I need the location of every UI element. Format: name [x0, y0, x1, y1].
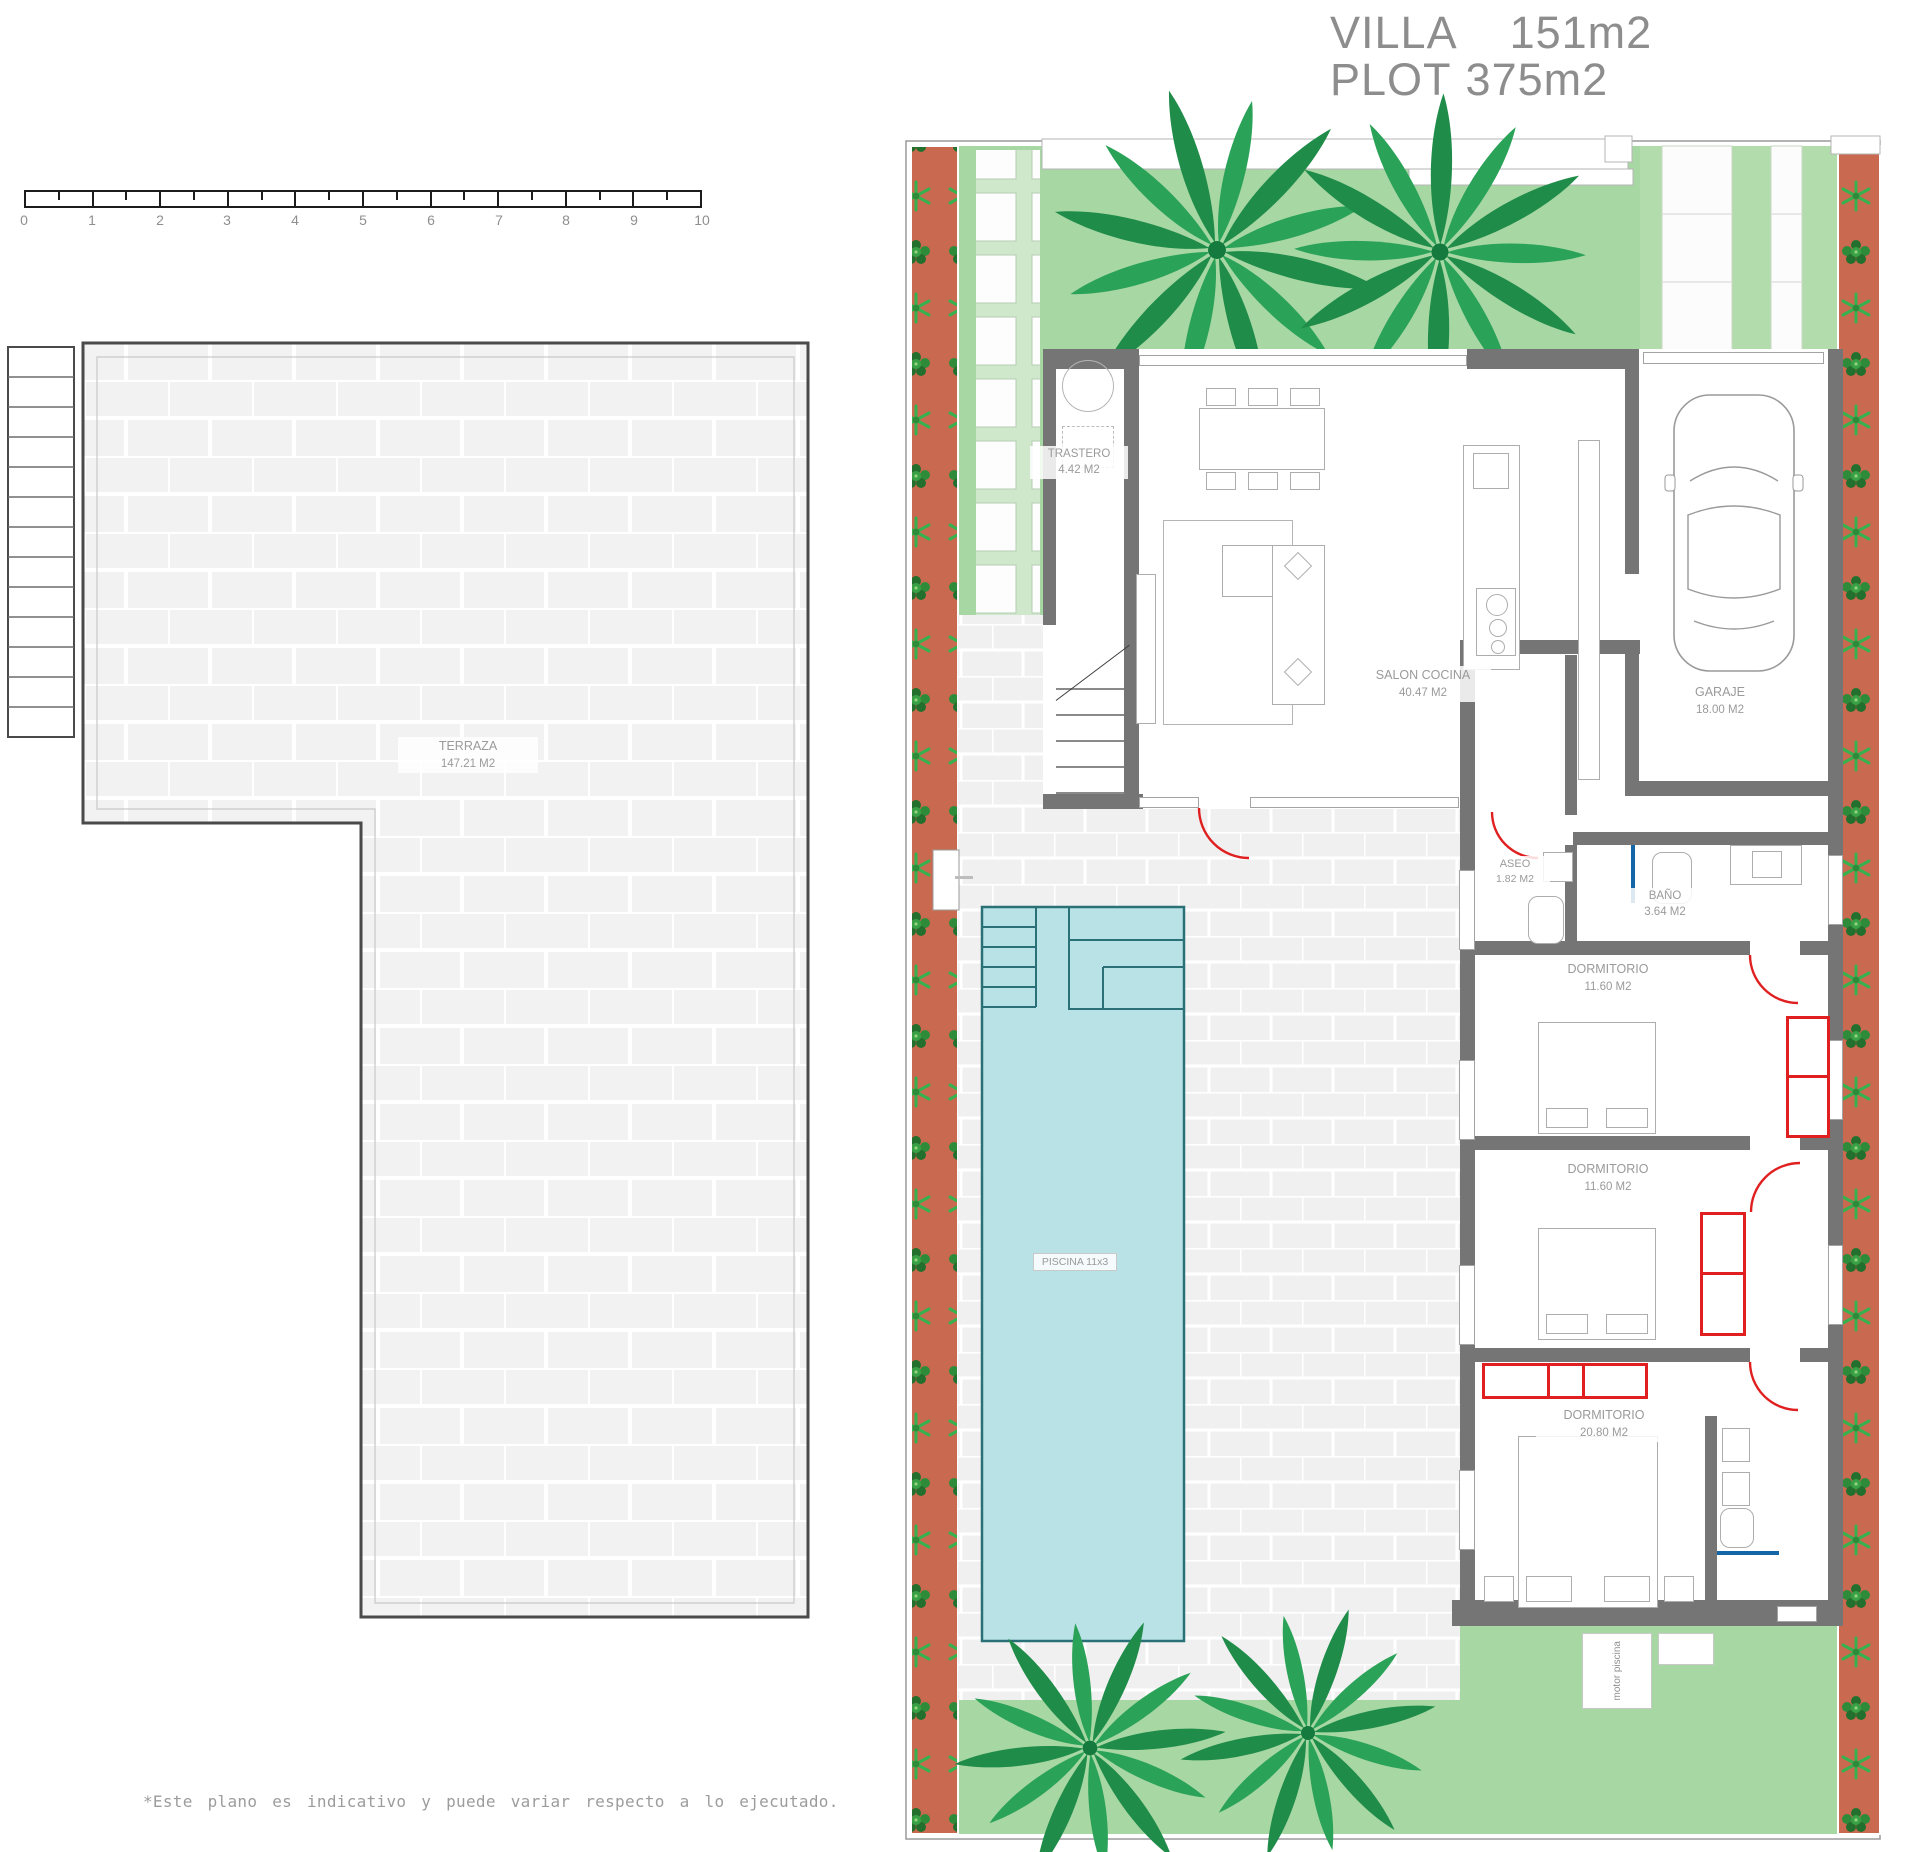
disclaimer: *Este plano es indicativo y puede variar…	[143, 1742, 893, 1852]
room-area: 3.64 M2	[1644, 906, 1686, 918]
scale-cell	[296, 192, 364, 206]
scale-number: 4	[291, 212, 299, 228]
room-name: GARAJE	[1670, 684, 1770, 701]
room-area: 40.47 M2	[1399, 687, 1447, 699]
room-area: 20.80 M2	[1580, 1427, 1628, 1439]
scale-cell	[634, 192, 700, 206]
room-name: TERRAZA	[401, 738, 535, 755]
room-name: TRASTERO	[1033, 447, 1125, 463]
room-area: 18.00 M2	[1696, 704, 1744, 716]
villa-title: VILLA 151m2 PLOT 375m2	[1330, 10, 1652, 104]
title-plot-label: PLOT	[1330, 57, 1452, 104]
room-area: 4.42 M2	[1058, 464, 1100, 476]
door-arc	[1750, 1362, 1798, 1410]
room-name: ASEO	[1483, 857, 1547, 872]
title-villa-label: VILLA	[1330, 10, 1458, 57]
scale-number: 10	[694, 212, 710, 228]
room-name: DORMITORIO	[1543, 1161, 1673, 1178]
scale-cell	[26, 192, 94, 206]
scale-bar	[24, 190, 702, 208]
door-swings	[0, 0, 1920, 1852]
pool-label: PISCINA 11x3	[1033, 1253, 1117, 1271]
scale-cell	[432, 192, 500, 206]
room-label-terraza: TERRAZA 147.21 M2	[398, 737, 538, 773]
door-arc	[1199, 808, 1249, 858]
disclaimer-line-es: *Este plano es indicativo y puede variar…	[143, 1790, 893, 1814]
scale-cell	[94, 192, 162, 206]
room-name: DORMITORIO	[1543, 961, 1673, 978]
pool-label-text: PISCINA 11x3	[1042, 1256, 1108, 1268]
door-arc	[1750, 955, 1798, 1003]
scale-number: 5	[359, 212, 367, 228]
scale-number: 7	[495, 212, 503, 228]
room-name: BAÑO	[1627, 889, 1703, 905]
room-label-aseo: ASEO 1.82 M2	[1480, 856, 1550, 888]
room-label-bano: BAÑO 3.64 M2	[1624, 888, 1706, 921]
room-area: 11.60 M2	[1584, 1181, 1631, 1193]
room-label-dormitorio1: DORMITORIO 11.60 M2	[1540, 960, 1676, 996]
door-arc	[1751, 1163, 1800, 1212]
scale-cell	[567, 192, 635, 206]
scale-cell	[499, 192, 567, 206]
room-area: 1.82 M2	[1496, 873, 1534, 885]
room-label-salon: SALON COCINA 40.47 M2	[1355, 666, 1491, 702]
title-villa-value: 151m2	[1510, 10, 1653, 57]
room-name: DORMITORIO	[1539, 1407, 1669, 1424]
room-label-trastero: TRASTERO 4.42 M2	[1030, 446, 1128, 479]
scale-cell	[161, 192, 229, 206]
scale-number: 3	[223, 212, 231, 228]
room-label-dormitorio2: DORMITORIO 11.60 M2	[1540, 1160, 1676, 1196]
scale-number: 2	[156, 212, 164, 228]
scale-number: 9	[630, 212, 638, 228]
scale-number: 8	[562, 212, 570, 228]
title-plot-value: 375m2	[1466, 57, 1609, 104]
scale-cell	[229, 192, 297, 206]
floorplan-sheet: TERRAZA 147.21 M2 TRASTERO 4.42 M2 SALON…	[0, 0, 1920, 1852]
room-label-garaje: GARAJE 18.00 M2	[1667, 683, 1773, 719]
scale-number: 1	[88, 212, 96, 228]
room-name: SALON COCINA	[1358, 667, 1488, 684]
scale-number: 6	[427, 212, 435, 228]
room-area: 147.21 M2	[441, 758, 495, 770]
room-label-dormitorio3: DORMITORIO 20.80 M2	[1536, 1406, 1672, 1442]
door-arc	[1492, 812, 1538, 858]
room-area: 11.60 M2	[1584, 981, 1631, 993]
scale-number: 0	[20, 212, 28, 228]
scale-cell	[364, 192, 432, 206]
